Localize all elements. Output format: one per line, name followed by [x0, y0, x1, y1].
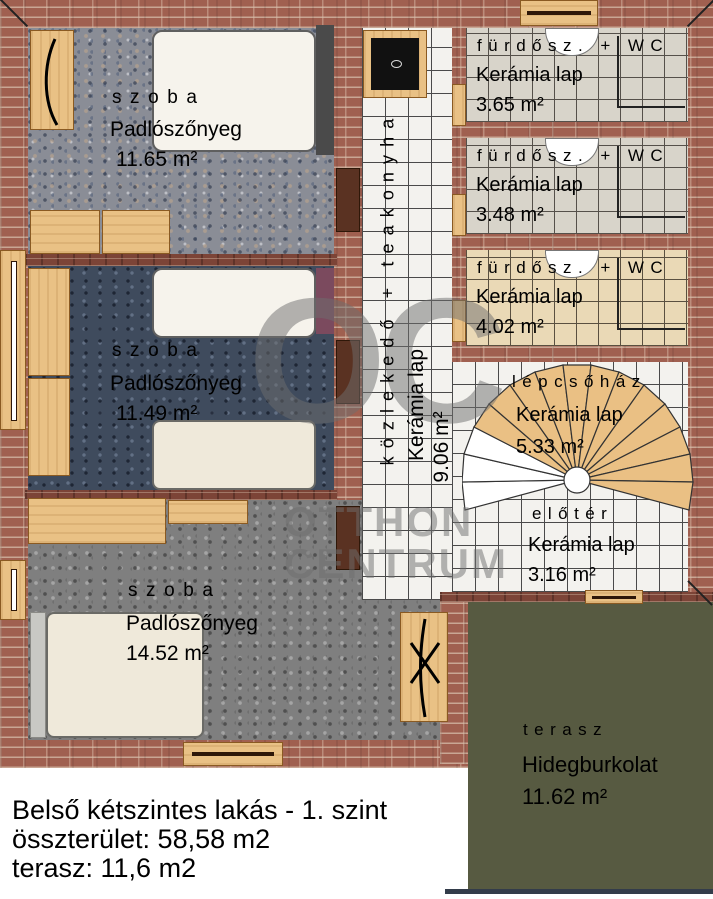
room-area: 14.52 m²	[126, 642, 209, 666]
plan-title: Belső kétszintes lakás - 1. szint	[12, 795, 387, 826]
room-area: 9.06 m²	[430, 411, 454, 482]
dresser	[102, 210, 170, 254]
bed-side-strip	[30, 612, 46, 738]
room-material: Kerámia lap	[516, 404, 623, 427]
room-area: 11.62 m²	[522, 784, 607, 810]
total-area-text: összterület: 58,58 m2	[12, 824, 270, 855]
room-material: Kerámia lap	[476, 286, 583, 309]
door-icon	[336, 506, 360, 570]
corridor-floor	[362, 28, 452, 600]
room-name: szoba	[112, 340, 205, 362]
terrace-area-text: terasz: 11,6 m2	[12, 853, 196, 884]
room-material: Kerámia lap	[405, 349, 429, 461]
wall-room1-room2	[25, 254, 337, 266]
room-name: fürdősz. + WC	[477, 258, 669, 278]
room-name: előtér	[532, 504, 613, 524]
window-pane	[192, 752, 274, 756]
floor-plan: OC OTTHON CENTRUM szoba Padlószőnyeg 11.…	[0, 0, 713, 899]
room-name: lépcsőház	[512, 372, 647, 392]
terrace-top-wall	[440, 592, 713, 602]
room-material: Kerámia lap	[528, 534, 635, 557]
room-name: közlekedő + teakonyha	[378, 111, 399, 466]
cabinet	[168, 500, 248, 524]
window-icon	[0, 560, 26, 620]
door-swing-icon	[31, 31, 75, 131]
room-name: fürdősz. + WC	[477, 146, 669, 166]
door-line	[592, 596, 636, 599]
room-area: 5.33 m²	[516, 436, 584, 459]
burner	[391, 60, 402, 68]
door-icon	[452, 300, 466, 342]
wardrobe	[30, 30, 74, 130]
wardrobe-doors-icon	[401, 613, 449, 723]
room-name: fürdősz. + WC	[477, 36, 669, 56]
room-material: Padlószőnyeg	[110, 118, 242, 142]
room-name: szoba	[128, 580, 221, 602]
wardrobe	[28, 378, 70, 476]
door-icon	[336, 168, 360, 232]
room-name: szoba	[112, 87, 205, 109]
room-material: Padlószőnyeg	[110, 372, 242, 396]
terrace-floor	[468, 598, 713, 889]
wardrobe	[28, 268, 70, 376]
window-icon	[520, 0, 598, 26]
bed	[152, 420, 316, 490]
window-icon	[183, 742, 283, 766]
room-material: Kerámia lap	[476, 174, 583, 197]
room-area: 3.48 m²	[476, 204, 544, 227]
room-material: Hidegburkolat	[522, 752, 658, 778]
room-area: 3.16 m²	[528, 564, 596, 587]
room-material: Padlószőnyeg	[126, 612, 258, 636]
terrace-bottom-edge	[445, 889, 713, 894]
window-pane	[11, 569, 17, 611]
bed-headboard	[316, 25, 334, 155]
window-pane	[527, 11, 591, 15]
closet-purple	[316, 268, 334, 334]
room-material: Kerámia lap	[476, 64, 583, 87]
door-icon	[452, 194, 466, 236]
room-area: 11.65 m²	[116, 148, 197, 172]
dresser	[30, 210, 100, 254]
room-name: terasz	[523, 720, 608, 740]
window-icon	[0, 250, 26, 430]
window-pane	[11, 261, 17, 421]
terrace-door-icon	[585, 590, 643, 604]
room-area: 3.65 m²	[476, 94, 544, 117]
bed	[152, 268, 316, 338]
door-icon	[452, 84, 466, 126]
cabinet	[28, 498, 166, 544]
room-area: 4.02 m²	[476, 316, 544, 339]
door-icon	[336, 340, 360, 404]
room-area: 11.49 m²	[116, 402, 197, 426]
stove-icon	[371, 38, 419, 90]
wardrobe	[400, 612, 448, 722]
